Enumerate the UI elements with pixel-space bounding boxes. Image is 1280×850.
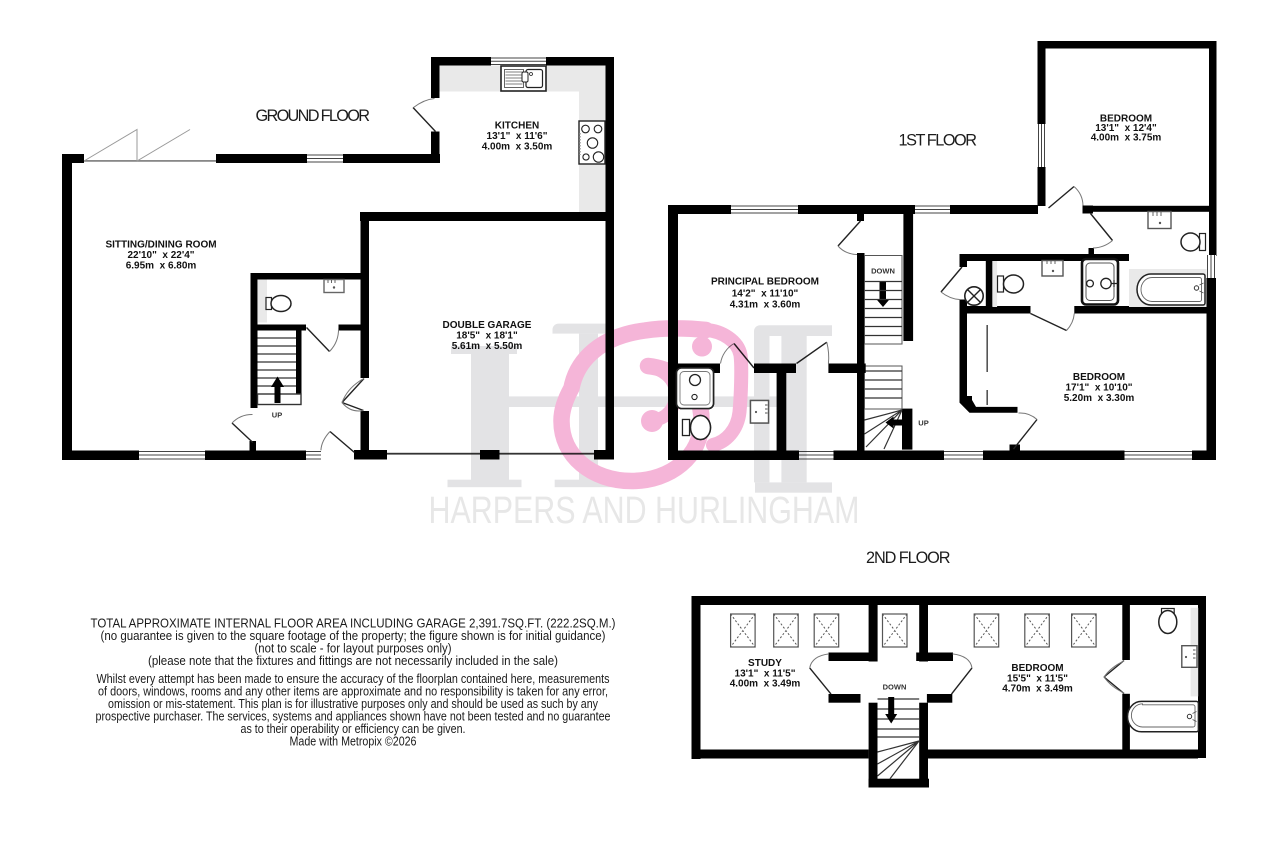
svg-text:UP: UP [918, 419, 928, 428]
svg-text:DOWN: DOWN [883, 683, 907, 692]
svg-text:14'2" x 11'10": 14'2" x 11'10" [732, 289, 799, 300]
svg-text:4.70m x 3.49m: 4.70m x 3.49m [1002, 684, 1073, 695]
svg-text:1ST FLOOR: 1ST FLOOR [899, 132, 978, 150]
svg-text:4.00m x 3.75m: 4.00m x 3.75m [1091, 133, 1162, 144]
svg-text:17'1" x 10'10": 17'1" x 10'10" [1065, 383, 1132, 394]
svg-text:6.95m x 6.80m: 6.95m x 6.80m [126, 261, 197, 272]
svg-text:DOUBLE GARAGE: DOUBLE GARAGE [443, 320, 532, 331]
svg-text:DOWN: DOWN [871, 267, 895, 276]
svg-text:PRINCIPAL BEDROOM: PRINCIPAL BEDROOM [711, 277, 819, 288]
svg-text:13'1" x 11'6": 13'1" x 11'6" [487, 131, 548, 142]
svg-text:4.31m x 3.60m: 4.31m x 3.60m [730, 300, 801, 311]
svg-text:18'5" x 18'1": 18'5" x 18'1" [456, 331, 518, 342]
svg-text:BEDROOM: BEDROOM [1073, 372, 1125, 383]
svg-text:UP: UP [272, 411, 282, 420]
svg-text:KITCHEN: KITCHEN [495, 121, 539, 132]
svg-text:22'10" x 22'4": 22'10" x 22'4" [127, 250, 194, 261]
svg-text:STUDY: STUDY [748, 658, 782, 669]
svg-text:2ND FLOOR: 2ND FLOOR [866, 549, 951, 567]
svg-text:(please note that the fixtures: (please note that the fixtures and fitti… [148, 653, 558, 668]
svg-text:5.20m x 3.30m: 5.20m x 3.30m [1064, 393, 1135, 404]
svg-text:4.00m x 3.49m: 4.00m x 3.49m [730, 679, 801, 690]
svg-text:SITTING/DINING ROOM: SITTING/DINING ROOM [105, 240, 216, 251]
svg-text:HARPERS AND HURLINGHAM: HARPERS AND HURLINGHAM [429, 490, 860, 532]
svg-text:4.00m x 3.50m: 4.00m x 3.50m [482, 142, 553, 153]
svg-text:GROUND FLOOR: GROUND FLOOR [256, 107, 371, 125]
svg-text:Made with Metropix ©2026: Made with Metropix ©2026 [290, 734, 417, 749]
